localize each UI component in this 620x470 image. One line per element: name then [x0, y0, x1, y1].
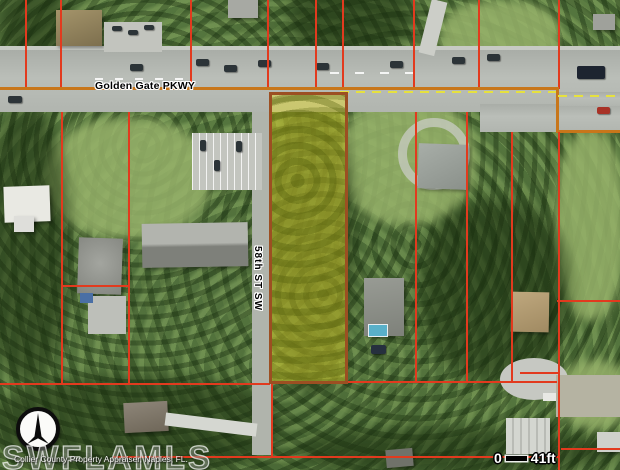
scale-bar-segment: [506, 456, 527, 461]
parcel-line: [61, 112, 63, 383]
car: [200, 140, 206, 151]
car: [258, 60, 271, 67]
car: [487, 54, 500, 61]
attribution-text: Collier County Property Appraiser, Naple…: [14, 454, 188, 464]
yellow-road-line: [340, 91, 556, 93]
parcel-line: [342, 0, 344, 89]
lane-marking: [380, 72, 389, 74]
car: [130, 64, 143, 71]
parcel-line: [561, 448, 620, 450]
car: [128, 30, 138, 35]
car: [112, 26, 122, 31]
parcel-line: [315, 0, 317, 89]
car: [316, 63, 329, 70]
golden-gate-pkwy-label: Golden Gate PKWY: [95, 80, 195, 92]
building: [56, 10, 102, 46]
building: [511, 292, 550, 333]
building: [385, 448, 413, 468]
blue-vehicle: [80, 293, 93, 303]
building: [228, 0, 258, 18]
yellow-road-line: [558, 95, 620, 97]
parcel-line: [190, 0, 192, 89]
car: [224, 65, 237, 72]
road-boundary-line: [556, 87, 559, 132]
car: [8, 96, 22, 103]
parcel-line: [128, 112, 130, 383]
car: [214, 160, 220, 171]
building: [142, 222, 249, 268]
parcel-line: [415, 112, 417, 381]
parcel-line: [271, 383, 273, 457]
car: [144, 25, 154, 30]
swimming-pool: [368, 324, 388, 337]
building: [14, 216, 34, 232]
parcel-line: [25, 0, 27, 89]
parcel-line: [466, 112, 468, 381]
woods-patch: [0, 110, 70, 380]
parcel-line: [348, 381, 557, 383]
highlighted-parcel: [269, 92, 348, 384]
building: [506, 418, 550, 454]
lane-marking: [330, 72, 339, 74]
parcel-line: [0, 383, 270, 385]
building: [123, 401, 169, 433]
car: [371, 345, 386, 354]
parcel-line: [558, 0, 560, 89]
building: [593, 14, 615, 30]
scale-distance-label: 41ft: [531, 450, 556, 466]
woods-patch: [420, 200, 570, 380]
building: [417, 143, 469, 190]
parcel-line: [557, 300, 620, 302]
parcel-line: [60, 0, 62, 89]
car: [390, 61, 403, 68]
car: [236, 141, 242, 152]
aerial-map: Golden Gate PKWY 58th ST SW 0 41ft SWFLA…: [0, 0, 620, 470]
parcel-line: [511, 132, 513, 381]
lane-marking: [355, 72, 364, 74]
road-boundary-line: [556, 130, 620, 133]
58th-st-sw-label: 58th ST SW: [252, 246, 263, 311]
driveway: [88, 296, 126, 334]
road-boundary-line: [0, 87, 557, 90]
car: [452, 57, 465, 64]
parcel-line: [61, 285, 128, 287]
driveway: [556, 375, 620, 417]
suv: [577, 66, 605, 79]
parcel-line: [478, 0, 480, 89]
scale-zero-label: 0: [494, 450, 502, 466]
red-car: [597, 107, 610, 114]
parcel-line: [520, 372, 558, 374]
white-vehicle: [543, 393, 556, 401]
parcel-line: [413, 0, 415, 89]
car: [196, 59, 209, 66]
parcel-line: [267, 0, 269, 89]
scale-bar: 0 41ft: [494, 450, 556, 466]
